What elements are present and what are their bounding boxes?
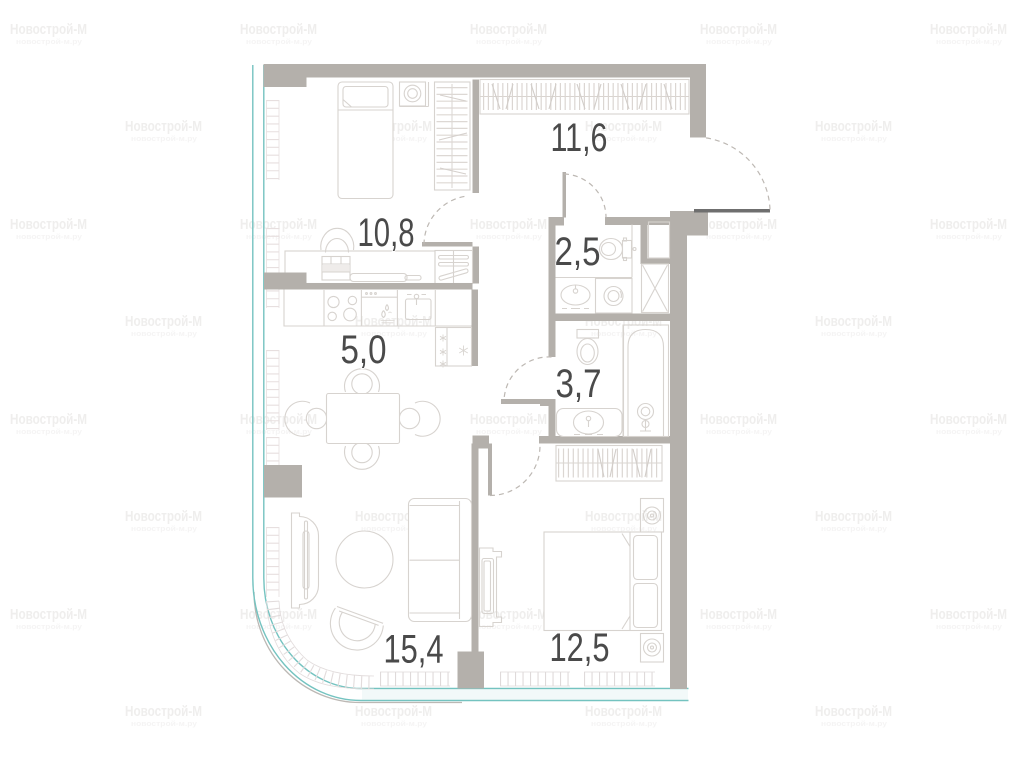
svg-text:Новострой-М: Новострой-М <box>240 216 317 233</box>
svg-text:новострой-м.ру: новострой-м.ру <box>936 428 1002 436</box>
svg-text:Новострой-М: Новострой-М <box>585 703 662 720</box>
svg-text:Новострой-М: Новострой-М <box>700 606 777 623</box>
svg-text:Новострой-М: Новострой-М <box>700 21 777 38</box>
svg-text:Новострой-М: Новострой-М <box>700 216 777 233</box>
svg-text:новострой-м.ру: новострой-м.ру <box>821 525 887 533</box>
svg-text:новострой-м.ру: новострой-м.ру <box>821 330 887 338</box>
svg-text:новострой-м.ру: новострой-м.ру <box>131 330 197 338</box>
svg-text:Новострой-М: Новострой-М <box>930 216 1007 233</box>
svg-text:Новострой-М: Новострой-М <box>10 411 87 428</box>
svg-text:Новострой-М: Новострой-М <box>240 411 317 428</box>
svg-text:15,4: 15,4 <box>384 628 444 672</box>
svg-text:новострой-м.ру: новострой-м.ру <box>936 233 1002 241</box>
svg-text:новострой-м.ру: новострой-м.ру <box>936 623 1002 631</box>
svg-text:Новострой-М: Новострой-М <box>815 118 892 135</box>
svg-text:11,6: 11,6 <box>551 116 608 160</box>
svg-text:новострой-м.ру: новострой-м.ру <box>591 720 657 728</box>
svg-text:новострой-м.ру: новострой-м.ру <box>476 233 542 241</box>
svg-text:новострой-м.ру: новострой-м.ру <box>16 623 82 631</box>
svg-text:Новострой-М: Новострой-М <box>815 703 892 720</box>
svg-text:новострой-м.ру: новострой-м.ру <box>246 38 312 46</box>
svg-text:новострой-м.ру: новострой-м.ру <box>131 135 197 143</box>
svg-text:новострой-м.ру: новострой-м.ру <box>16 428 82 436</box>
svg-text:Новострой-М: Новострой-М <box>815 313 892 330</box>
svg-text:новострой-м.ру: новострой-м.ру <box>476 38 542 46</box>
svg-text:новострой-м.ру: новострой-м.ру <box>706 428 772 436</box>
svg-text:Новострой-М: Новострой-М <box>125 118 202 135</box>
svg-text:2,5: 2,5 <box>555 230 601 274</box>
svg-text:Новострой-М: Новострой-М <box>10 606 87 623</box>
svg-text:новострой-м.ру: новострой-м.ру <box>821 135 887 143</box>
svg-text:новострой-м.ру: новострой-м.ру <box>16 233 82 241</box>
svg-text:Новострой-М: Новострой-М <box>930 21 1007 38</box>
svg-text:новострой-м.ру: новострой-м.ру <box>821 720 887 728</box>
svg-text:новострой-м.ру: новострой-м.ру <box>131 525 197 533</box>
svg-text:3,7: 3,7 <box>556 362 602 406</box>
svg-text:новострой-м.ру: новострой-м.ру <box>936 38 1002 46</box>
svg-text:новострой-м.ру: новострой-м.ру <box>591 330 657 338</box>
svg-text:Новострой-М: Новострой-М <box>815 508 892 525</box>
svg-text:Новострой-М: Новострой-М <box>125 508 202 525</box>
svg-text:новострой-м.ру: новострой-м.ру <box>131 720 197 728</box>
svg-text:Новострой-М: Новострой-М <box>10 21 87 38</box>
svg-text:Новострой-М: Новострой-М <box>125 703 202 720</box>
svg-text:Новострой-М: Новострой-М <box>930 411 1007 428</box>
svg-text:Новострой-М: Новострой-М <box>700 411 777 428</box>
svg-text:Новострой-М: Новострой-М <box>470 411 547 428</box>
svg-text:новострой-м.ру: новострой-м.ру <box>476 428 542 436</box>
svg-text:новострой-м.ру: новострой-м.ру <box>706 38 772 46</box>
svg-text:Новострой-М: Новострой-М <box>470 216 547 233</box>
svg-text:новострой-м.ру: новострой-м.ру <box>706 233 772 241</box>
svg-text:новострой-м.ру: новострой-м.ру <box>706 623 772 631</box>
svg-text:новострой-м.ру: новострой-м.ру <box>361 720 427 728</box>
svg-text:новострой-м.ру: новострой-м.ру <box>246 623 312 631</box>
svg-text:5,0: 5,0 <box>341 328 387 372</box>
svg-text:Новострой-М: Новострой-М <box>240 21 317 38</box>
svg-text:Новострой-М: Новострой-М <box>470 21 547 38</box>
svg-text:12,5: 12,5 <box>550 626 610 670</box>
svg-text:10,8: 10,8 <box>358 211 415 255</box>
svg-text:Новострой-М: Новострой-М <box>10 216 87 233</box>
svg-text:Новострой-М: Новострой-М <box>355 703 432 720</box>
svg-text:Новострой-М: Новострой-М <box>930 606 1007 623</box>
svg-text:новострой-м.ру: новострой-м.ру <box>16 38 82 46</box>
svg-text:Новострой-М: Новострой-М <box>125 313 202 330</box>
